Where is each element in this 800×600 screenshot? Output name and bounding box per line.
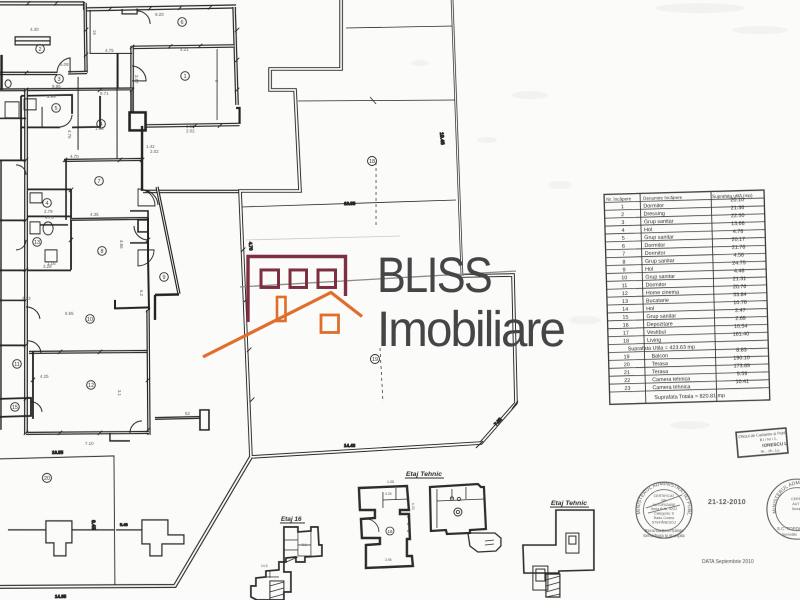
- svg-text:Grup sanitar: Grup sanitar: [644, 234, 674, 241]
- svg-text:Home cinema: Home cinema: [646, 290, 679, 297]
- svg-text:Camera tehnica: Camera tehnica: [652, 376, 690, 383]
- svg-text:5.43: 5.43: [120, 522, 129, 527]
- svg-text:9.85: 9.85: [52, 84, 61, 89]
- svg-text:22: 22: [624, 378, 630, 384]
- svg-text:8.83: 8.83: [736, 347, 747, 353]
- svg-text:Semnătu: Semnătu: [782, 533, 797, 537]
- svg-text:9: 9: [163, 275, 166, 281]
- svg-text:Camera tehnica: Camera tehnica: [652, 384, 690, 391]
- svg-text:Seria: Seria: [792, 507, 800, 511]
- svg-text:4.76: 4.76: [733, 229, 744, 235]
- svg-text:4.75: 4.75: [105, 48, 114, 53]
- svg-text:2.47: 2.47: [735, 308, 746, 314]
- svg-text:Hol: Hol: [645, 267, 653, 273]
- svg-text:5.08: 5.08: [60, 62, 69, 67]
- svg-text:15: 15: [12, 405, 18, 411]
- svg-text:14: 14: [622, 307, 628, 313]
- svg-text:1: 1: [184, 74, 187, 80]
- svg-text:BLISS: BLISS: [377, 247, 492, 303]
- svg-text:173.89: 173.89: [734, 363, 751, 369]
- svg-text:AUT: AUT: [792, 502, 800, 506]
- svg-text:22.50: 22.50: [731, 213, 745, 219]
- svg-text:14.6: 14.6: [261, 564, 268, 568]
- svg-text:21: 21: [624, 370, 630, 376]
- svg-text:7.10: 7.10: [85, 441, 94, 446]
- svg-text:CERT: CERT: [791, 497, 800, 501]
- svg-text:21.36: 21.36: [731, 205, 745, 211]
- svg-text:Living: Living: [647, 338, 661, 344]
- svg-text:4.30: 4.30: [30, 27, 39, 32]
- svg-text:9.20: 9.20: [155, 12, 164, 17]
- svg-text:52: 52: [185, 411, 190, 416]
- svg-text:11: 11: [14, 362, 20, 368]
- svg-text:14.35: 14.35: [55, 594, 67, 599]
- svg-text:161.40: 161.40: [733, 331, 750, 337]
- svg-text:4.25: 4.25: [385, 492, 392, 496]
- svg-text:21.31: 21.31: [733, 276, 747, 282]
- svg-text:10: 10: [621, 275, 627, 281]
- svg-text:16.55: 16.55: [52, 450, 64, 455]
- svg-text:6.33: 6.33: [411, 503, 415, 510]
- svg-text:3.95: 3.95: [385, 558, 392, 562]
- svg-text:4.25: 4.25: [40, 374, 49, 379]
- svg-text:ȘTEFĂNESCU: ȘTEFĂNESCU: [652, 520, 677, 524]
- svg-text:3.87: 3.87: [134, 75, 139, 84]
- svg-text:4.73: 4.73: [45, 215, 54, 220]
- svg-text:14.43: 14.43: [344, 443, 356, 448]
- svg-text:1.05: 1.05: [95, 126, 104, 131]
- svg-text:3: 3: [621, 220, 624, 226]
- svg-text:Etaj 16: Etaj 16: [281, 516, 302, 523]
- svg-text:Vestibul: Vestibul: [647, 329, 666, 336]
- svg-text:Terasa: Terasa: [652, 361, 668, 367]
- svg-text:Dormitor: Dormitor: [644, 243, 665, 250]
- svg-text:13: 13: [34, 240, 40, 246]
- svg-text:19.46: 19.46: [438, 132, 445, 145]
- svg-text:10.54: 10.54: [734, 324, 748, 330]
- svg-text:3.23: 3.23: [22, 296, 31, 301]
- svg-text:Hol: Hol: [644, 227, 652, 233]
- svg-text:16: 16: [92, 30, 97, 35]
- svg-text:7: 7: [622, 252, 625, 258]
- svg-text:Grup sanitar: Grup sanitar: [645, 274, 675, 281]
- svg-text:1.16: 1.16: [47, 261, 56, 266]
- svg-text:3.1: 3.1: [302, 543, 307, 547]
- svg-text:2.79: 2.79: [44, 209, 53, 214]
- svg-text:4.70: 4.70: [70, 154, 79, 159]
- svg-text:4.76: 4.76: [67, 130, 72, 139]
- svg-text:4: 4: [621, 228, 624, 234]
- svg-text:Balcon: Balcon: [651, 353, 668, 359]
- svg-text:Etaj Tehnic: Etaj Tehnic: [551, 500, 587, 507]
- svg-text:2: 2: [39, 47, 42, 53]
- svg-text:23: 23: [624, 386, 630, 392]
- svg-text:6: 6: [622, 244, 625, 250]
- svg-text:6.2: 6.2: [139, 290, 144, 297]
- svg-text:10.41: 10.41: [735, 379, 749, 385]
- svg-text:Depozitare: Depozitare: [647, 321, 673, 328]
- svg-text:Hol: Hol: [646, 306, 654, 312]
- svg-text:Grup sanitar: Grup sanitar: [644, 219, 674, 226]
- svg-text:12: 12: [88, 383, 94, 389]
- svg-text:4.70: 4.70: [248, 242, 253, 251]
- svg-text:15: 15: [622, 315, 628, 321]
- svg-text:16: 16: [623, 323, 629, 329]
- svg-text:13.55: 13.55: [344, 201, 356, 206]
- svg-text:4.56: 4.56: [119, 240, 124, 249]
- svg-text:Bucatarie: Bucatarie: [646, 298, 669, 305]
- svg-text:2.99: 2.99: [47, 94, 56, 99]
- svg-text:21-12-2010: 21-12-2010: [708, 499, 746, 506]
- svg-text:Terasa: Terasa: [652, 369, 668, 375]
- svg-text:18: 18: [623, 338, 629, 344]
- svg-text:190.10: 190.10: [733, 355, 750, 361]
- svg-text:8: 8: [622, 259, 625, 265]
- svg-text:4.56: 4.56: [733, 252, 744, 258]
- svg-text:Dormitor: Dormitor: [645, 250, 666, 257]
- svg-text:19: 19: [623, 354, 629, 360]
- svg-text:4.46: 4.46: [734, 268, 745, 274]
- svg-text:21.76: 21.76: [732, 245, 746, 251]
- svg-text:6: 6: [181, 20, 184, 26]
- svg-text:20.76: 20.76: [733, 284, 747, 290]
- svg-text:20: 20: [44, 476, 50, 482]
- svg-text:19: 19: [372, 357, 378, 363]
- svg-text:33.84: 33.84: [733, 292, 747, 298]
- svg-text:10: 10: [87, 317, 93, 323]
- svg-text:10.76: 10.76: [733, 300, 747, 306]
- svg-text:5: 5: [622, 236, 625, 242]
- svg-text:5: 5: [55, 106, 58, 112]
- svg-text:2.69: 2.69: [735, 316, 746, 322]
- svg-text:13.66: 13.66: [731, 221, 745, 227]
- svg-text:Grup sanitar: Grup sanitar: [645, 258, 675, 265]
- svg-text:Nr. încăpere: Nr. încăpere: [606, 196, 632, 202]
- svg-text:4: 4: [46, 201, 49, 207]
- svg-text:2: 2: [621, 212, 624, 218]
- svg-text:2.02: 2.02: [150, 149, 159, 154]
- svg-text:24.75: 24.75: [732, 260, 746, 266]
- svg-text:4.21: 4.21: [180, 47, 189, 52]
- svg-text:Etaj Tehnic: Etaj Tehnic: [406, 471, 442, 478]
- svg-text:20.17: 20.17: [732, 237, 746, 243]
- svg-text:3: 3: [58, 77, 61, 83]
- svg-text:DATA Septembrie 2010: DATA Septembrie 2010: [702, 559, 754, 565]
- svg-text:1.05: 1.05: [387, 480, 394, 484]
- svg-text:Dressing: Dressing: [644, 211, 665, 218]
- svg-text:4.35: 4.35: [90, 212, 99, 217]
- svg-text:9: 9: [623, 267, 626, 273]
- svg-text:13: 13: [622, 299, 628, 305]
- svg-text:Imobiliare: Imobiliare: [377, 301, 564, 357]
- svg-text:6.43: 6.43: [90, 520, 96, 530]
- svg-text:6.55: 6.55: [65, 311, 74, 316]
- svg-text:7: 7: [98, 179, 101, 185]
- svg-text:20.10: 20.10: [730, 197, 744, 203]
- svg-text:16: 16: [387, 529, 393, 534]
- svg-text:2.02: 2.02: [186, 128, 195, 133]
- svg-text:Grup sanitar: Grup sanitar: [646, 313, 676, 320]
- svg-text:Dormitor: Dormitor: [646, 282, 667, 289]
- svg-text:18: 18: [369, 159, 375, 165]
- svg-text:20: 20: [624, 362, 630, 368]
- svg-text:17: 17: [623, 330, 629, 336]
- svg-text:11: 11: [622, 283, 628, 289]
- svg-text:Semnătura și ștampila: Semnătura și ștampila: [643, 533, 685, 538]
- svg-text:3.1: 3.1: [117, 390, 122, 397]
- svg-text:Dormitor: Dormitor: [643, 203, 664, 210]
- svg-text:9.59: 9.59: [737, 371, 748, 377]
- svg-text:8: 8: [101, 249, 104, 255]
- svg-text:9.71: 9.71: [100, 91, 109, 96]
- svg-text:12: 12: [622, 291, 628, 297]
- svg-text:1: 1: [621, 204, 624, 210]
- svg-text:S.C. TOPOCON: S.C. TOPOCON: [777, 526, 800, 531]
